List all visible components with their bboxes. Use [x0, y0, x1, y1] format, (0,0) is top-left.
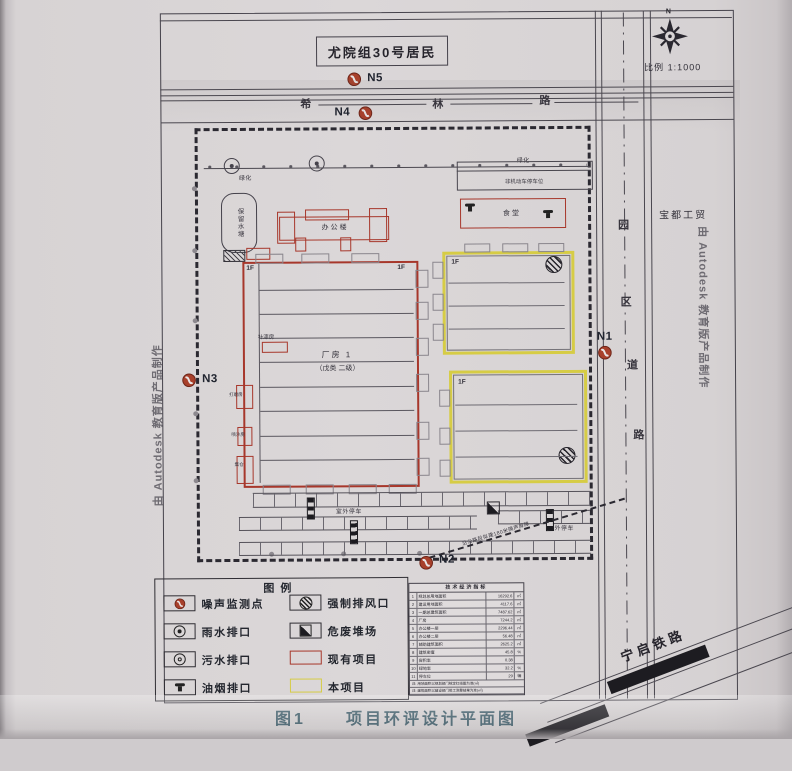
legend-label: 强制排风口 — [327, 595, 390, 611]
paint-room-label: 补漆房 — [258, 333, 275, 341]
autodesk-watermark-right: 由 Autodesk 教育版产品制作 — [695, 226, 713, 506]
loading-dock-tab — [432, 262, 443, 279]
legend-icon-box — [289, 594, 321, 610]
this-project-swatch — [290, 678, 322, 692]
fume-outlet-icon — [543, 210, 553, 219]
loading-dock-tab — [538, 243, 564, 252]
loading-dock-tab — [416, 374, 429, 392]
compass-rose-icon — [652, 18, 688, 54]
legend-label: 噪声监测点 — [201, 596, 264, 612]
loading-dock-tab — [416, 302, 429, 320]
bike-parking-area — [457, 161, 593, 191]
office-building-foot — [340, 237, 351, 251]
floor-tag: 1F — [397, 264, 405, 271]
right-road-name-char: 园 — [618, 217, 629, 233]
gatehouse-hatch — [223, 250, 245, 262]
loading-dock-tab — [416, 422, 429, 440]
pond-label: 保留水塘 — [234, 208, 244, 238]
loading-dock-tab — [440, 460, 451, 477]
canteen-label: 食堂 — [488, 208, 536, 218]
noise-monitor-marker-n3 — [182, 373, 196, 387]
monitor-label-n1: N1 — [597, 331, 613, 343]
side-room-box — [237, 456, 254, 484]
legend-title: 图例 — [154, 579, 406, 597]
legend-icon-box — [164, 623, 196, 639]
forced-exhaust-icon — [299, 596, 312, 609]
legend-icon-box — [163, 595, 195, 611]
top-road-name-char: 希 — [300, 96, 311, 112]
parking-row — [253, 491, 591, 508]
factory-class-label: （戊类 二级） — [290, 363, 385, 374]
fume-outlet-icon — [465, 204, 475, 213]
existing-project-swatch — [290, 650, 322, 664]
loading-dock-tab — [301, 253, 329, 263]
right-road-name-char: 区 — [621, 294, 632, 310]
hazardous-waste-icon — [300, 625, 312, 637]
legend-label: 油烟排口 — [202, 680, 252, 696]
figure-caption-prefix: 图1 — [275, 711, 306, 728]
office-building-wing — [277, 212, 295, 244]
gate-icon — [307, 497, 315, 519]
parking-row — [239, 540, 591, 556]
indicator-table-body: 1规划总用地面积16292.6㎡2建设用地面积4117.6㎡3一期总建筑面积74… — [409, 592, 524, 695]
factory-name-label: 厂房 1 — [297, 349, 377, 360]
office-building-wing — [369, 208, 387, 242]
autodesk-watermark-left: 由 Autodesk 教育版产品制作 — [148, 226, 166, 506]
loading-dock-tab — [433, 324, 444, 341]
boundary-post — [192, 186, 197, 191]
tree-icon — [224, 158, 240, 174]
legend-icon-box — [164, 679, 196, 695]
noise-monitor-icon — [174, 598, 185, 609]
residents-box: 尤院组30号居民 — [316, 36, 448, 67]
loading-dock-tab — [416, 338, 429, 356]
right-road-name-char: 路 — [633, 426, 644, 442]
forced-exhaust-icon — [545, 256, 562, 273]
tree-icon — [309, 155, 325, 171]
side-room-label: 喷沙房 — [231, 432, 245, 438]
gate-icon — [350, 520, 358, 544]
floor-tag: 1F — [451, 259, 459, 266]
legend-label: 危废堆场 — [328, 623, 378, 639]
loading-dock-tab — [417, 458, 430, 476]
loading-dock-tab — [351, 253, 379, 263]
factory-building-outline — [242, 261, 419, 488]
scanned-sheet: 希 林 路 园 区 道 路 尤院组30号居民 宝都工贸 N 比例 1:1000 … — [0, 0, 792, 739]
loading-dock-tab — [433, 294, 444, 311]
legend-label: 污水排口 — [202, 652, 252, 668]
monitor-label-n4: N4 — [334, 106, 350, 118]
scale-label: 比例 1:1000 — [644, 60, 701, 73]
monitor-label-n2: N2 — [439, 554, 455, 566]
rainwater-outlet-icon — [174, 625, 186, 637]
loading-dock-tab — [502, 243, 528, 252]
sewage-outlet-icon — [174, 653, 186, 665]
outdoor-parking-label: 室外停车 — [336, 506, 362, 515]
loading-dock-tab — [464, 243, 490, 252]
office-building-foot — [295, 238, 306, 252]
legend-label: 雨水排口 — [202, 624, 252, 640]
side-room-label: 集仓 — [235, 462, 244, 468]
right-road-name-char: 道 — [627, 357, 638, 373]
indicator-note: 注: 建筑面积以建设部门竣工测量结果为准(㎡) — [410, 687, 524, 695]
top-road-name-char: 路 — [539, 92, 550, 108]
top-road-name-char: 林 — [432, 96, 443, 112]
legend-icon-box — [290, 622, 322, 638]
office-label: 办公楼 — [307, 222, 363, 232]
monitor-label-n3: N3 — [202, 373, 218, 385]
greening-label: 绿化 — [239, 173, 252, 182]
loading-dock-tab — [255, 254, 283, 264]
indicator-table: 技术经济指标 1规划总用地面积16292.6㎡2建设用地面积4117.6㎡3一期… — [408, 582, 525, 696]
retained-pond: 保留水塘 — [221, 193, 257, 253]
legend-label: 本项目 — [328, 679, 366, 695]
noise-monitor-marker-n2 — [419, 556, 433, 570]
monitor-label-n5: N5 — [367, 72, 383, 84]
loading-dock-tab — [439, 428, 450, 445]
noise-monitor-marker-n5 — [347, 72, 361, 86]
legend-icon-box — [164, 651, 196, 667]
paint-room-box — [262, 342, 288, 353]
figure-caption: 图1项目环评设计平面图 — [0, 705, 792, 729]
noise-monitor-marker-n4 — [358, 106, 372, 120]
figure-caption-title: 项目环评设计平面图 — [346, 711, 517, 728]
legend-label: 现有项目 — [328, 651, 378, 667]
office-building-bump — [305, 209, 349, 220]
side-room-label: 打磨房 — [229, 392, 243, 398]
loading-dock-tab — [415, 270, 428, 288]
loading-dock-tab — [439, 390, 450, 407]
compass-north-label: N — [666, 8, 671, 15]
site-plan-drawing: 希 林 路 园 区 道 路 尤院组30号居民 宝都工贸 N 比例 1:1000 … — [0, 0, 792, 741]
noise-monitor-marker-n1 — [598, 346, 612, 360]
new-building-2-outline — [449, 370, 588, 484]
hazardous-waste-icon — [487, 501, 500, 514]
floor-tag: 1F — [246, 265, 254, 272]
floor-tag: 1F — [458, 379, 466, 386]
bike-parking-label: 非机动车停车位 — [505, 177, 544, 185]
company-label: 宝都工贸 — [659, 206, 707, 221]
fume-outlet-icon — [175, 683, 185, 692]
